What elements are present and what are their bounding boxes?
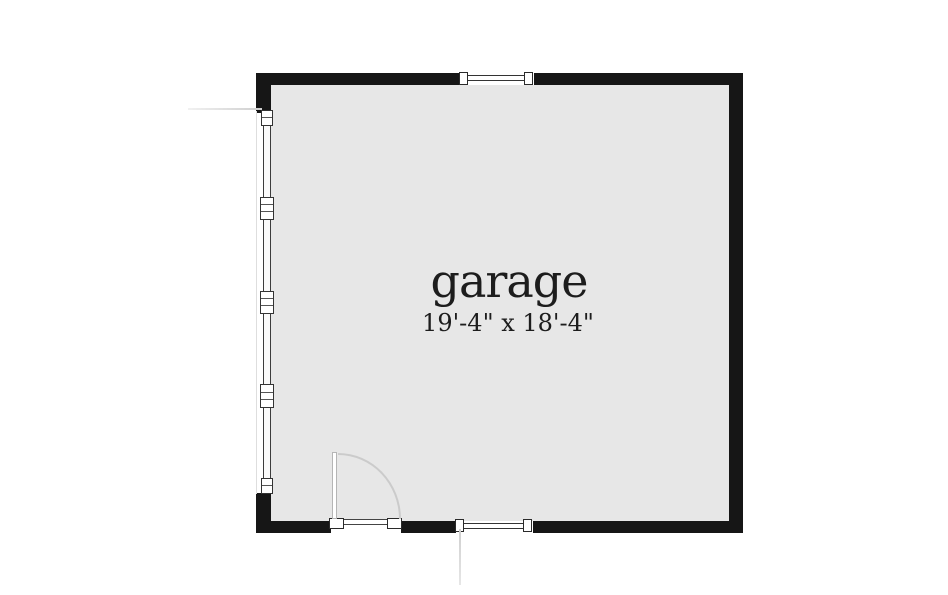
reference-line-horizontal <box>188 108 262 110</box>
left-wall-window-marker-3 <box>260 291 274 314</box>
wall-bottom-middle-segment <box>401 521 456 533</box>
window-mullion-divider <box>262 485 272 486</box>
wall-right <box>729 73 743 533</box>
door-jamb-right <box>387 518 402 529</box>
window-mullion-divider <box>261 305 273 306</box>
left-wall-window-marker-1 <box>261 110 273 126</box>
wall-top-right-segment <box>534 73 743 85</box>
bottom-window-jamb-right <box>523 519 532 532</box>
bottom-window-glass <box>464 523 523 529</box>
wall-bottom-left-segment <box>266 521 331 533</box>
room-name-label: garage <box>431 256 588 307</box>
window-mullion-divider <box>261 392 273 393</box>
window-mullion-divider <box>261 211 273 212</box>
window-mullion-divider <box>261 399 273 400</box>
top-window-jamb-left <box>459 72 468 85</box>
top-window-jamb-right <box>524 72 533 85</box>
door-jamb-left <box>329 518 344 529</box>
window-mullion-divider <box>262 117 272 118</box>
door-threshold-lines <box>343 519 388 525</box>
top-window-glass <box>467 75 525 81</box>
left-wall-window-marker-5 <box>261 478 273 494</box>
reference-line-vertical <box>459 529 461 585</box>
door-leaf <box>332 452 337 519</box>
left-wall-window-marker-4 <box>260 384 274 408</box>
window-mullion-divider <box>261 298 273 299</box>
wall-corner-top-left <box>256 73 271 113</box>
wall-bottom-right-segment <box>533 521 743 533</box>
room-dimensions-label: 19'-4" x 18'-4" <box>422 310 594 336</box>
wall-top-left-segment <box>256 73 461 85</box>
left-wall-window-marker-2 <box>260 197 274 220</box>
left-wall-exterior-face-line <box>256 111 257 494</box>
window-mullion-divider <box>261 204 273 205</box>
